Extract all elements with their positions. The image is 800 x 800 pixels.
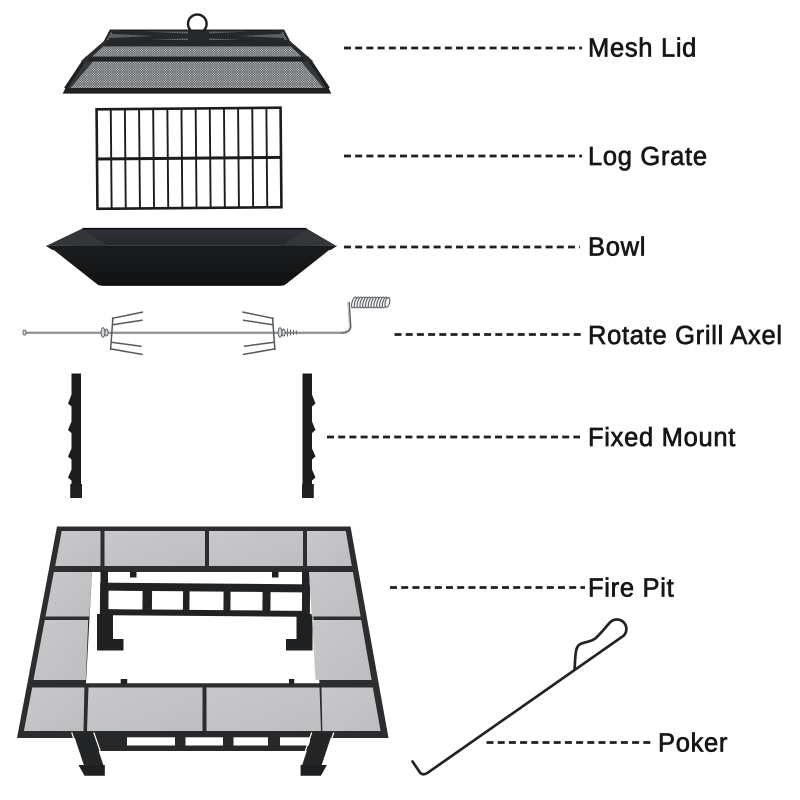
svg-text:Fire Pit: Fire Pit: [588, 575, 674, 603]
svg-text:Fixed Mount: Fixed Mount: [588, 424, 736, 452]
svg-text:Poker: Poker: [658, 730, 728, 758]
svg-text:Log Grate: Log Grate: [588, 143, 708, 171]
svg-text:Rotate Grill Axel: Rotate Grill Axel: [588, 322, 783, 350]
svg-text:Mesh Lid: Mesh Lid: [588, 35, 697, 63]
svg-text:Bowl: Bowl: [588, 234, 646, 262]
